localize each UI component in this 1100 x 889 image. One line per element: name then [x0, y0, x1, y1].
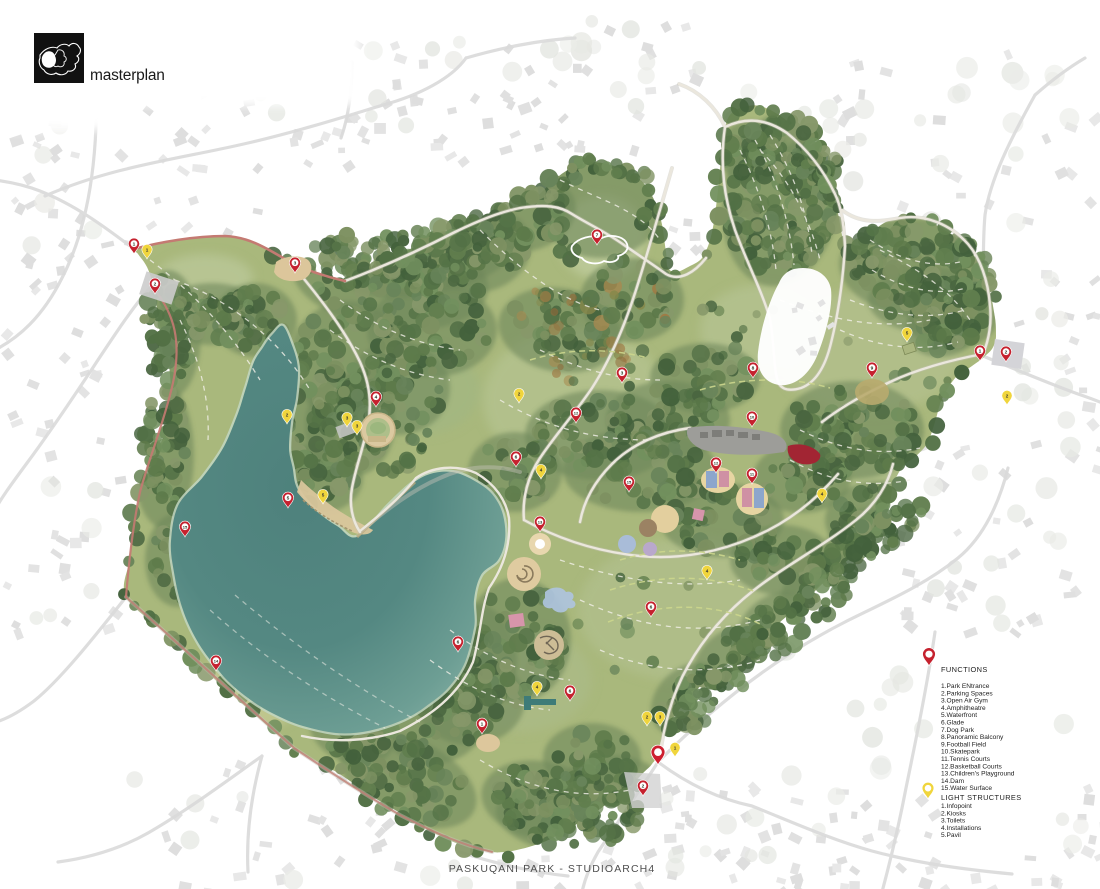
svg-text:4: 4: [375, 394, 378, 400]
svg-text:13.Children's Playground: 13.Children's Playground: [941, 771, 1015, 778]
svg-text:3: 3: [294, 260, 297, 266]
svg-text:14: 14: [214, 658, 219, 663]
svg-text:3.Open Air Gym: 3.Open Air Gym: [941, 698, 988, 705]
svg-text:2.Parking Spaces: 2.Parking Spaces: [941, 690, 993, 697]
svg-text:2: 2: [154, 281, 157, 287]
svg-text:11.Tennis Courts: 11.Tennis Courts: [941, 756, 991, 763]
svg-text:7: 7: [596, 232, 599, 238]
svg-text:6: 6: [457, 639, 460, 645]
svg-text:12.Basketball Courts: 12.Basketball Courts: [941, 763, 1003, 770]
svg-text:8.Panoramic Balcony: 8.Panoramic Balcony: [941, 734, 1004, 741]
svg-text:FUNCTIONS: FUNCTIONS: [941, 665, 988, 674]
svg-text:12: 12: [574, 410, 579, 415]
svg-text:1: 1: [979, 348, 982, 354]
svg-text:6: 6: [569, 688, 572, 694]
svg-text:1: 1: [481, 721, 484, 727]
svg-text:3.Toilets: 3.Toilets: [941, 818, 966, 825]
svg-text:6: 6: [515, 454, 518, 460]
svg-text:2: 2: [286, 412, 289, 417]
svg-text:2: 2: [646, 714, 649, 719]
svg-text:4: 4: [540, 467, 543, 472]
svg-text:8: 8: [752, 365, 755, 371]
svg-text:4: 4: [706, 568, 709, 573]
svg-text:1.Infopoint: 1.Infopoint: [941, 803, 972, 810]
svg-text:10: 10: [750, 414, 755, 419]
svg-text:12: 12: [714, 460, 719, 465]
svg-text:5: 5: [906, 330, 909, 335]
svg-text:13: 13: [538, 519, 543, 524]
svg-text:5: 5: [287, 495, 290, 501]
svg-text:9.Football Field: 9.Football Field: [941, 741, 986, 748]
svg-text:6: 6: [650, 604, 653, 610]
svg-text:2: 2: [518, 391, 521, 396]
svg-text:3: 3: [621, 370, 624, 376]
svg-text:10.Skatepark: 10.Skatepark: [941, 749, 981, 756]
svg-text:4.Installations: 4.Installations: [941, 825, 982, 832]
svg-text:2.Kiosks: 2.Kiosks: [941, 810, 967, 817]
svg-text:1: 1: [146, 247, 149, 252]
svg-text:3: 3: [356, 423, 359, 428]
svg-text:1.Park ENtrance: 1.Park ENtrance: [941, 683, 990, 690]
svg-text:1: 1: [674, 745, 677, 750]
svg-text:15.Water Surface: 15.Water Surface: [941, 785, 992, 792]
svg-text:14.Dam: 14.Dam: [941, 778, 965, 785]
svg-text:5.Waterfront: 5.Waterfront: [941, 712, 977, 719]
svg-text:4.Amphitheatre: 4.Amphitheatre: [941, 705, 986, 712]
svg-text:PASKUQANI PARK - STUDIOARCH4: PASKUQANI PARK - STUDIOARCH4: [449, 863, 656, 875]
svg-text:4: 4: [536, 684, 539, 689]
svg-text:masterplan: masterplan: [90, 67, 165, 84]
svg-text:6.Glade: 6.Glade: [941, 720, 964, 727]
svg-text:2: 2: [642, 783, 645, 789]
svg-text:5: 5: [322, 492, 325, 497]
svg-text:15: 15: [627, 479, 632, 484]
svg-text:4: 4: [821, 491, 824, 496]
svg-text:3: 3: [659, 714, 662, 719]
svg-text:2: 2: [1005, 349, 1008, 355]
svg-text:LIGHT STRUCTURES: LIGHT STRUCTURES: [941, 793, 1022, 802]
svg-text:1: 1: [133, 241, 136, 247]
svg-text:5.Pavil: 5.Pavil: [941, 832, 961, 839]
svg-text:3: 3: [346, 415, 349, 420]
svg-text:2: 2: [1006, 393, 1009, 398]
svg-text:7.Dog Park: 7.Dog Park: [941, 727, 975, 734]
svg-text:9: 9: [871, 365, 874, 371]
svg-text:15: 15: [183, 524, 188, 529]
